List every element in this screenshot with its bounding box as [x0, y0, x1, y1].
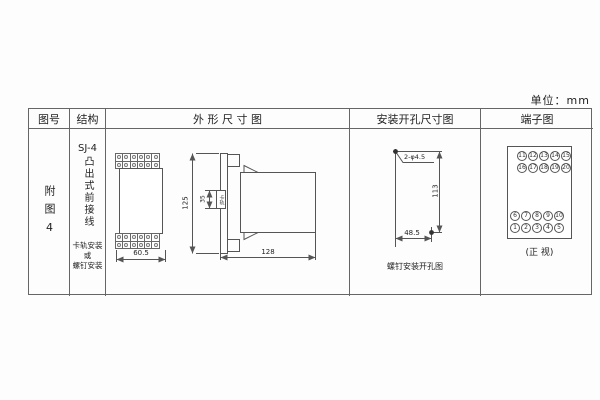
hole-size-label: 2-φ4.5: [404, 154, 425, 161]
header-mounting: 安装开孔尺寸图: [349, 109, 480, 129]
terminal-pin: 1: [510, 223, 520, 233]
mounting-note: 卡轨安装 或 螺钉安装: [73, 241, 103, 271]
fig-no-cell: 附图4: [29, 129, 69, 296]
terminal-pin: 17: [528, 163, 538, 173]
side-view-profile: [221, 154, 316, 254]
header-outline: 外 形 尺 寸 图: [105, 109, 349, 129]
terminal-pin: 18: [539, 163, 549, 173]
mounting-note-line3: 螺钉安装: [73, 261, 103, 271]
terminal-pin: 8: [532, 211, 542, 221]
terminal-row-top1: 11 12 13 14 15: [517, 151, 571, 161]
depth-label: 128: [261, 249, 274, 256]
mounting-caption: 螺钉安装开孔图: [370, 261, 460, 272]
rail-section-box: 卡轨: [216, 190, 226, 209]
terminal-pin: 20: [561, 163, 571, 173]
terminal-row-bottom2: 1 2 3 4 5: [510, 223, 564, 233]
terminal-pin: 16: [517, 163, 527, 173]
mounting-note-line2: 或: [73, 251, 103, 261]
terminal-pin: 2: [521, 223, 531, 233]
terminal-pin: 3: [532, 223, 542, 233]
mounting-drawing-cell: 2-φ4.5 113 48.5 螺钉安装开孔图: [349, 129, 480, 296]
terminal-pin: 10: [554, 211, 564, 221]
side-height-label: 125: [183, 196, 190, 209]
vertical-spacing-label: 113: [433, 184, 440, 197]
rail-width-label: 35: [200, 195, 207, 203]
terminal-pin: 4: [543, 223, 553, 233]
mounting-holes: [393, 149, 434, 235]
header-terminal: 端子图: [480, 109, 593, 129]
unit-label: 单位：mm: [531, 92, 590, 108]
terminal-pin: 6: [510, 211, 520, 221]
fig-no-text: 附图4: [41, 185, 57, 241]
model-name: SJ-4: [78, 143, 97, 154]
terminal-pin: 14: [550, 151, 560, 161]
rail-dimension: [205, 191, 216, 209]
front-terminal-strip-bottom-row2: [116, 241, 160, 250]
terminal-drawing-cell: 11 12 13 14 15 16 17 18 19 20 6 7 8 9 10…: [480, 129, 593, 296]
terminal-pin: 9: [543, 211, 553, 221]
terminal-pin: 12: [528, 151, 538, 161]
front-width-label: 60.5: [133, 250, 149, 257]
datasheet-page: { "unit": "单位：mm", "headers": { "fig_no"…: [0, 0, 600, 400]
terminal-row-bottom1: 6 7 8 9 10: [510, 211, 564, 221]
terminal-screw: [151, 241, 159, 250]
structure-type-text: 凸出式前接线: [80, 156, 95, 236]
terminal-pin: 7: [521, 211, 531, 221]
header-fig-no: 图号: [29, 109, 69, 129]
terminal-pin: 19: [550, 163, 560, 173]
horizontal-spacing-label: 48.5: [404, 230, 420, 237]
terminal-pin: 15: [561, 151, 571, 161]
terminal-pin: 13: [539, 151, 549, 161]
terminal-pin: 11: [517, 151, 527, 161]
terminal-caption: (正 视): [507, 245, 572, 258]
terminal-row-top2: 16 17 18 19 20: [517, 163, 571, 173]
header-structure: 结构: [69, 109, 105, 129]
spec-table: 图号 结构 外 形 尺 寸 图 安装开孔尺寸图 端子图 附图4 SJ-4 凸出式…: [28, 108, 592, 295]
front-view-body: [119, 168, 163, 234]
terminal-pin: 5: [554, 223, 564, 233]
mounting-note-line1: 卡轨安装: [73, 241, 103, 251]
structure-cell: SJ-4 凸出式前接线 卡轨安装 或 螺钉安装: [69, 129, 105, 296]
outline-drawing-cell: 卡轨 60.5 125 35 128: [105, 129, 349, 296]
